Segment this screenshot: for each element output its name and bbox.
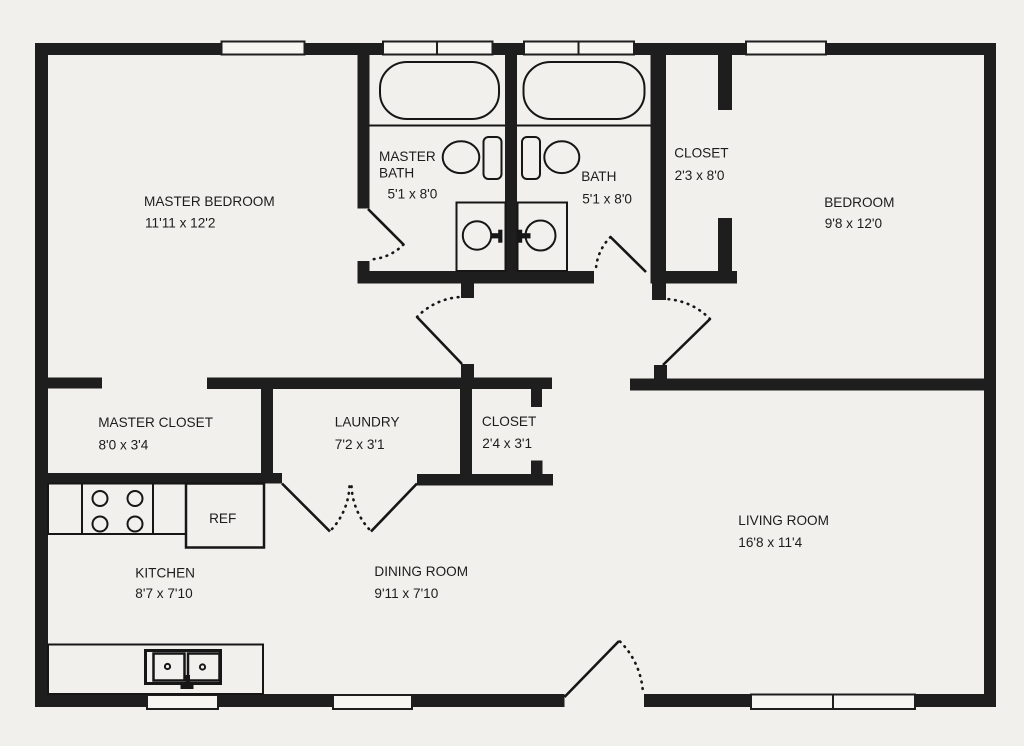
svg-text:LAUNDRY: LAUNDRY	[335, 415, 400, 430]
svg-text:5'1 x 8'0: 5'1 x 8'0	[388, 187, 438, 202]
svg-text:7'2 x 3'1: 7'2 x 3'1	[335, 437, 385, 452]
svg-text:2'3 x 8'0: 2'3 x 8'0	[675, 168, 725, 183]
svg-text:16'8 x 11'4: 16'8 x 11'4	[738, 535, 802, 550]
svg-text:CLOSET: CLOSET	[482, 414, 536, 429]
svg-text:REF: REF	[209, 511, 236, 526]
svg-text:KITCHEN: KITCHEN	[135, 566, 195, 581]
svg-text:MASTER: MASTER	[379, 149, 436, 164]
svg-text:BEDROOM: BEDROOM	[824, 195, 894, 210]
svg-text:CLOSET: CLOSET	[674, 146, 728, 161]
svg-text:9'11 x 7'10: 9'11 x 7'10	[374, 586, 438, 601]
svg-text:8'7 x 7'10: 8'7 x 7'10	[135, 586, 193, 601]
svg-text:LIVING ROOM: LIVING ROOM	[738, 513, 829, 528]
svg-text:11'11 x 12'2: 11'11 x 12'2	[145, 216, 215, 231]
svg-text:9'8 x 12'0: 9'8 x 12'0	[825, 216, 883, 231]
svg-text:DINING ROOM: DINING ROOM	[374, 564, 468, 579]
svg-text:BATH: BATH	[379, 166, 414, 181]
svg-text:MASTER BEDROOM: MASTER BEDROOM	[144, 194, 275, 209]
svg-text:MASTER CLOSET: MASTER CLOSET	[98, 415, 213, 430]
svg-text:8'0 x 3'4: 8'0 x 3'4	[99, 438, 149, 453]
svg-text:2'4 x 3'1: 2'4 x 3'1	[482, 436, 532, 451]
svg-text:BATH: BATH	[581, 169, 616, 184]
svg-text:5'1 x 8'0: 5'1 x 8'0	[582, 192, 632, 207]
